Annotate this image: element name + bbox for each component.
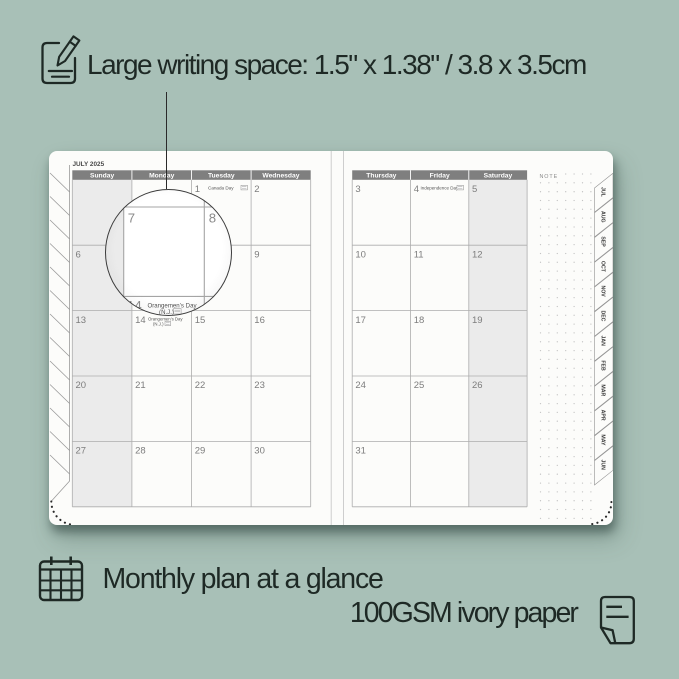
svg-text:JUL: JUL [600, 187, 606, 198]
svg-text:6: 6 [76, 249, 81, 260]
svg-text:14: 14 [135, 315, 146, 326]
svg-text:DEC: DEC [600, 310, 606, 321]
svg-text:JAN: JAN [600, 336, 606, 347]
svg-text:(N.J.): (N.J.) [153, 322, 164, 327]
svg-text:30: 30 [254, 446, 265, 457]
svg-text:3: 3 [355, 184, 360, 195]
svg-text:4: 4 [414, 184, 419, 195]
svg-text:Friday: Friday [430, 173, 450, 180]
svg-text:19: 19 [472, 315, 483, 326]
svg-text:Canada Day: Canada Day [208, 186, 234, 191]
svg-text:2: 2 [254, 184, 259, 195]
svg-text:18: 18 [414, 315, 425, 326]
svg-text:23: 23 [254, 380, 265, 391]
svg-text:MAR: MAR [600, 384, 606, 396]
svg-text:JULY 2025: JULY 2025 [73, 161, 105, 168]
svg-text:12: 12 [472, 249, 483, 260]
svg-text:11: 11 [414, 249, 424, 260]
svg-text:25: 25 [414, 380, 425, 391]
svg-text:NOTE: NOTE [540, 174, 559, 180]
svg-text:Monday: Monday [149, 173, 175, 180]
svg-text:28: 28 [135, 446, 146, 457]
svg-text:24: 24 [355, 380, 366, 391]
svg-text:9: 9 [254, 249, 259, 260]
svg-text:MAY: MAY [600, 434, 606, 446]
svg-text:1: 1 [195, 184, 200, 195]
svg-text:20: 20 [76, 380, 87, 391]
svg-text:13: 13 [76, 315, 87, 326]
svg-text:FEB: FEB [600, 360, 606, 371]
svg-text:SEP: SEP [600, 236, 606, 247]
svg-text:5: 5 [472, 184, 477, 195]
svg-text:Independence Day: Independence Day [421, 186, 460, 191]
svg-text:Tuesday: Tuesday [208, 173, 235, 180]
svg-text:21: 21 [135, 380, 146, 391]
svg-text:NOV: NOV [600, 286, 606, 298]
svg-text:AUG: AUG [600, 211, 606, 223]
svg-text:31: 31 [355, 446, 366, 457]
svg-text:JUN: JUN [600, 460, 606, 471]
svg-text:17: 17 [355, 315, 366, 326]
svg-text:10: 10 [355, 249, 366, 260]
svg-text:APR: APR [600, 410, 606, 421]
svg-text:OCT: OCT [600, 261, 606, 273]
svg-text:27: 27 [76, 446, 87, 457]
svg-text:29: 29 [195, 446, 206, 457]
svg-text:16: 16 [254, 315, 265, 326]
svg-text:Wednesday: Wednesday [262, 173, 299, 180]
svg-text:Thursday: Thursday [366, 173, 396, 180]
svg-text:Saturday: Saturday [484, 173, 513, 180]
svg-text:26: 26 [472, 380, 483, 391]
svg-text:15: 15 [195, 315, 206, 326]
svg-text:Sunday: Sunday [90, 173, 114, 180]
svg-text:22: 22 [195, 380, 206, 391]
